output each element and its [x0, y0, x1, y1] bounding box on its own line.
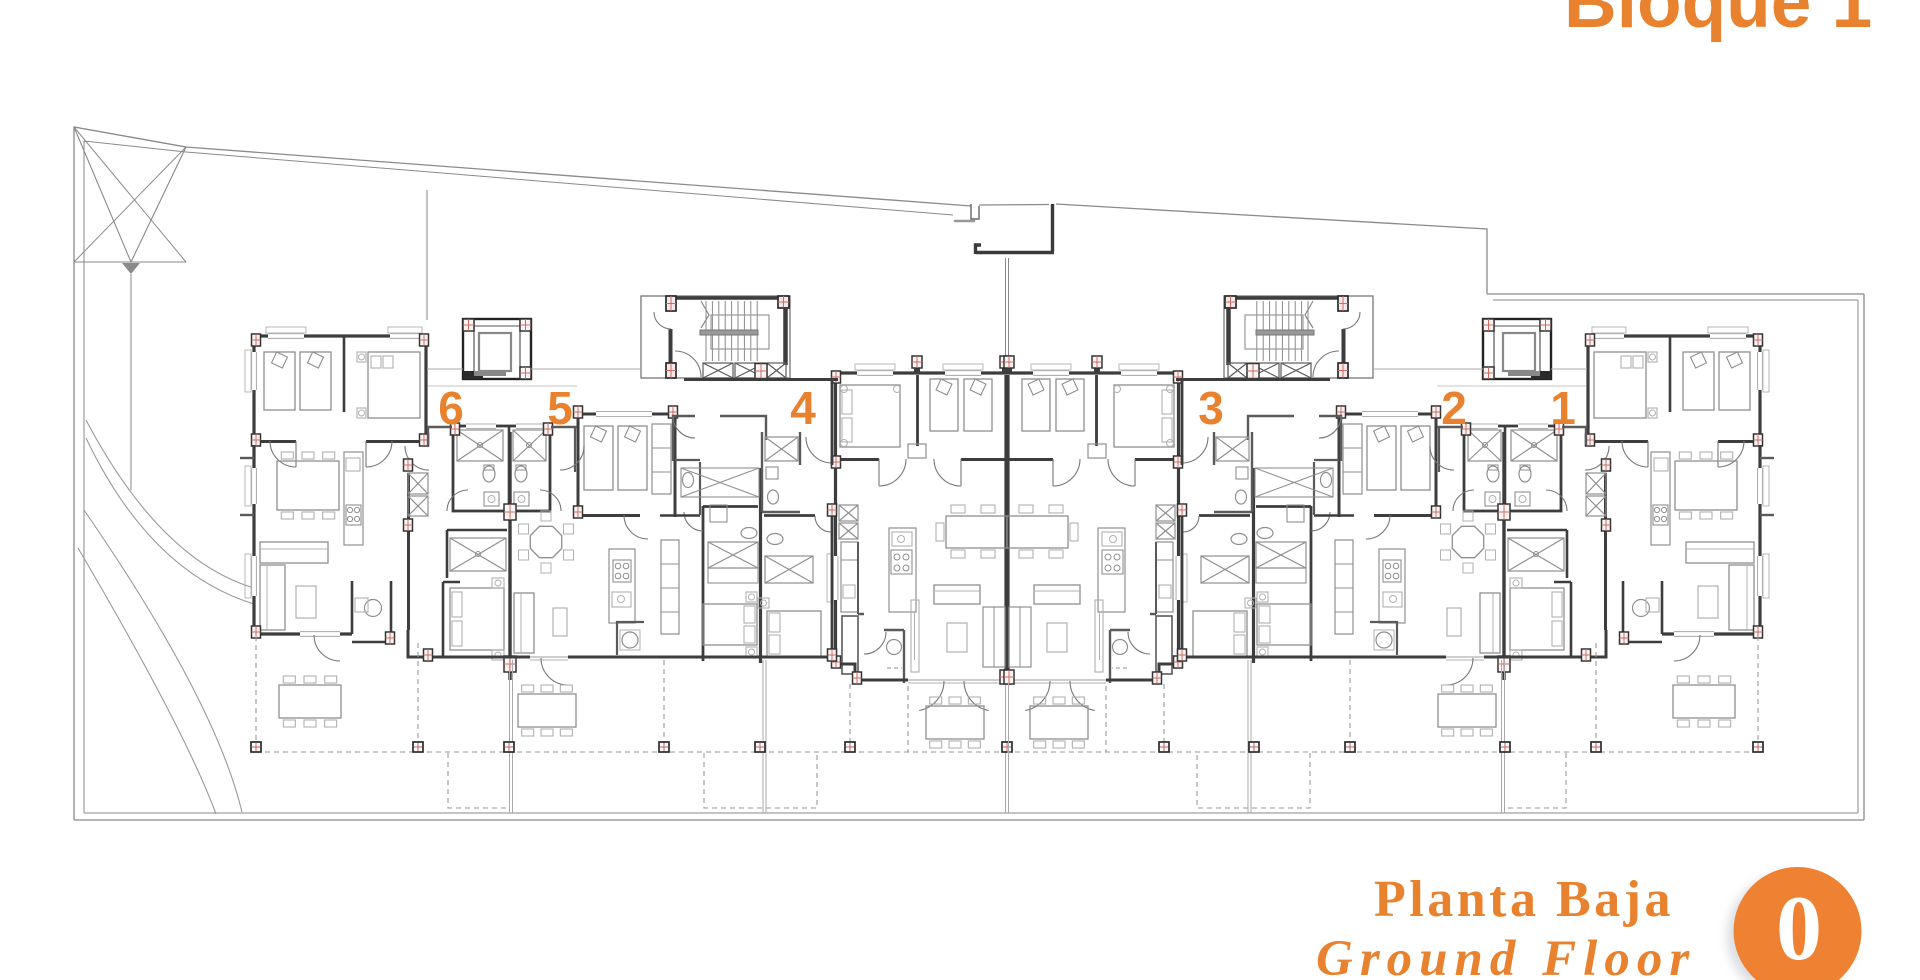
- svg-text:4: 4: [790, 382, 816, 434]
- svg-text:5: 5: [547, 382, 573, 434]
- svg-text:Planta Baja: Planta Baja: [1374, 871, 1674, 928]
- svg-text:1: 1: [1550, 382, 1576, 434]
- svg-text:3: 3: [1198, 382, 1224, 434]
- svg-text:0: 0: [1776, 877, 1822, 979]
- svg-text:Ground Floor: Ground Floor: [1316, 931, 1696, 980]
- svg-text:6: 6: [438, 382, 464, 434]
- svg-text:2: 2: [1441, 382, 1467, 434]
- svg-text:Bloque 1: Bloque 1: [1564, 0, 1872, 43]
